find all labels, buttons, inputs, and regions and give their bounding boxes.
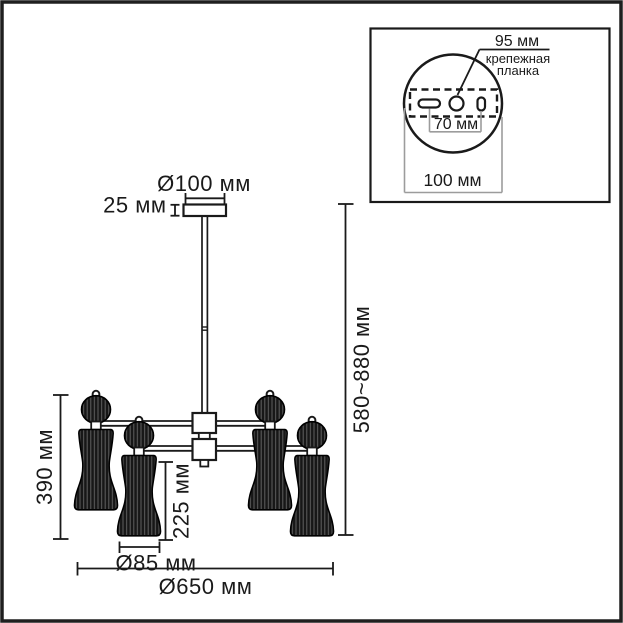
label-shade-height: 225 мм: [169, 463, 194, 539]
mounting-slot-left: [419, 100, 441, 108]
lamp-inner-left: [117, 417, 160, 536]
chandelier-dimension-diagram: 95 мм крепежная планка 70 мм 100 мм: [0, 0, 623, 623]
label-mounting-plate-line2: планка: [497, 63, 540, 78]
central-hub: [193, 413, 217, 467]
label-overall-diameter: Ø650 мм: [159, 574, 253, 599]
label-fixture-height: 390 мм: [32, 429, 57, 505]
hub-finial-nub: [200, 460, 208, 467]
lamp-outer-left: [74, 391, 117, 510]
hub-lower-block: [193, 439, 217, 460]
mounting-inset: 95 мм крепежная планка 70 мм 100 мм: [371, 29, 610, 203]
label-100mm: 100 мм: [423, 170, 481, 190]
hub-upper-block: [193, 413, 217, 433]
label-hanging-height: 580~880 мм: [349, 306, 374, 434]
label-70mm: 70 мм: [434, 116, 478, 133]
technical-drawing-page: 95 мм крепежная планка 70 мм 100 мм: [0, 0, 623, 623]
lamp-inner-right: [248, 391, 291, 510]
lamp-outer-right: [290, 417, 333, 536]
label-canopy-diameter: Ø100 мм: [157, 171, 251, 196]
ceiling-canopy: [184, 205, 227, 217]
label-shade-diameter: Ø85 мм: [116, 551, 197, 576]
mounting-slot-right: [478, 98, 486, 111]
down-rod: [202, 212, 207, 414]
label-canopy-height: 25 мм: [103, 193, 166, 218]
mounting-hole-center: [450, 97, 464, 111]
label-95mm: 95 мм: [495, 33, 539, 50]
